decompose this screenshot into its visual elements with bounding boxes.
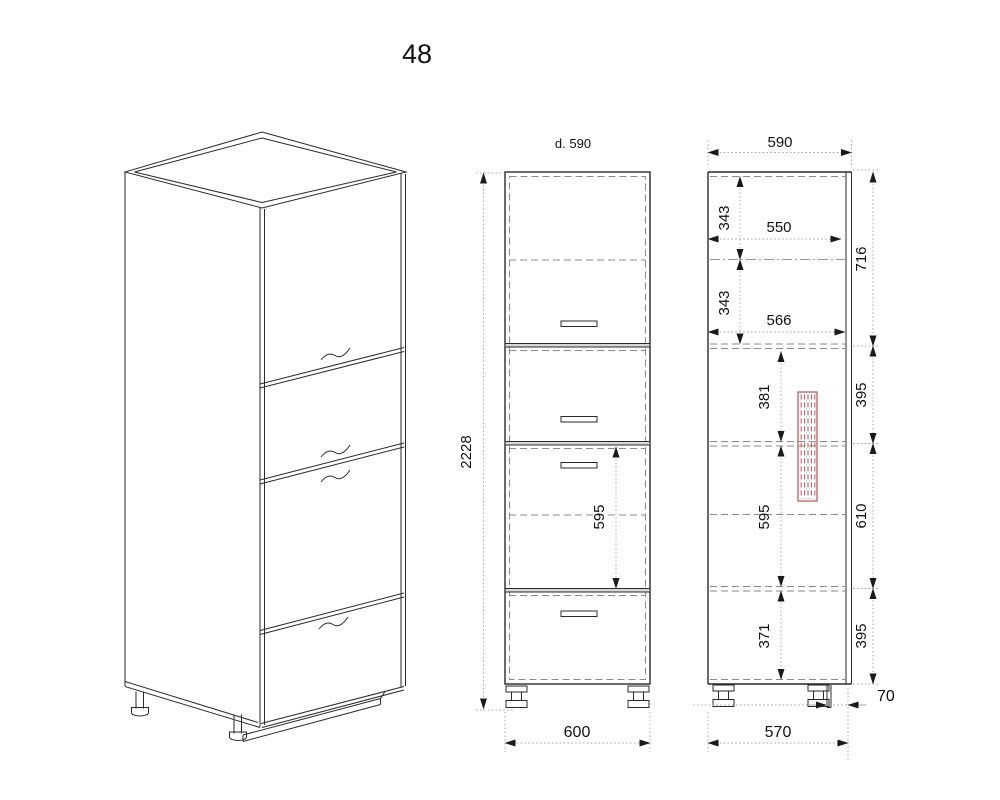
side-view: 590 343 550 343 566 381 595 371 — [693, 134, 895, 762]
adjustable-feet — [132, 692, 247, 741]
front-divisions — [260, 348, 404, 728]
dim-plinth-offset: 70 — [877, 688, 895, 705]
right-chain-dimensions: 716 395 610 395 — [853, 170, 879, 684]
dim-drawer-height: 595 — [591, 504, 608, 529]
dim-inner-depth-top: 550 — [766, 219, 791, 236]
front-view-legs — [506, 686, 649, 708]
dim-chain-610: 610 — [853, 503, 870, 528]
front-depth-label: d. 590 — [555, 136, 591, 151]
dim-compartment-c: 371 — [756, 623, 773, 648]
dim-front-width: 600 — [564, 724, 591, 741]
side-view-legs — [713, 685, 831, 708]
dim-top-compartment: 343 — [716, 205, 733, 230]
dim-inner-depth-mid: 566 — [766, 312, 791, 329]
dim-total-height: 2228 — [458, 435, 475, 468]
dim-chain-395a: 395 — [853, 382, 870, 407]
door-handles — [319, 348, 350, 629]
front-view: d. 590 2228 595 600 — [458, 136, 650, 752]
dim-depth: 590 — [767, 134, 792, 151]
dim-compartment-a: 381 — [756, 384, 773, 409]
technical-drawing: 48 — [0, 0, 1000, 800]
page-title: 48 — [402, 39, 432, 69]
dim-second-compartment: 343 — [716, 290, 733, 315]
isometric-view — [125, 132, 406, 742]
drawing-page: 48 — [0, 0, 1000, 800]
dim-bottom-depth: 570 — [765, 724, 792, 741]
front-view-handles — [561, 321, 597, 617]
dim-chain-716: 716 — [853, 246, 870, 271]
dim-chain-395b: 395 — [853, 623, 870, 648]
dim-compartment-b: 595 — [756, 504, 773, 529]
